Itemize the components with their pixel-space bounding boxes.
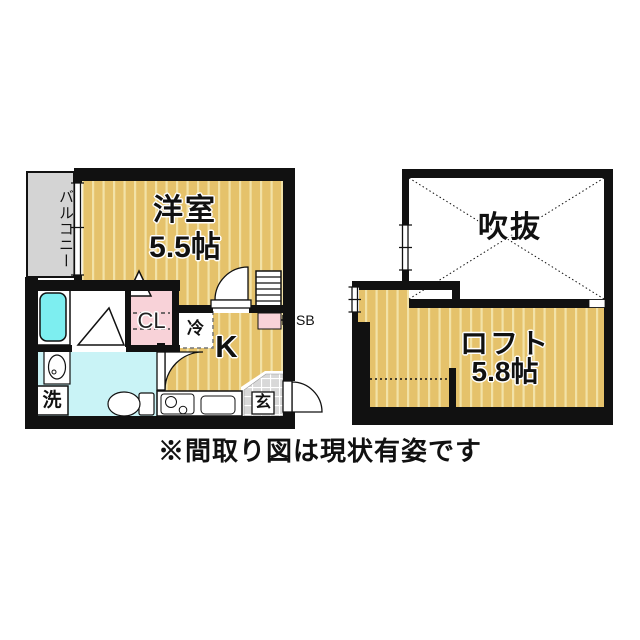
toilet-tank [139, 393, 154, 415]
floorplan-drawing [0, 0, 640, 640]
closet-label: CL [131, 310, 172, 332]
loft-wall-opening [589, 300, 605, 308]
main-room-size: 5.5帖 [85, 233, 285, 263]
shoe-box-label: SB [296, 313, 315, 327]
main-room-label: 洋室 [85, 196, 285, 226]
toilet-bowl [108, 392, 140, 416]
laundry-label: 洗 [36, 391, 68, 410]
floorplan-image: バルコニー 洋室 5.5帖 CL 冷 K SB 玄 洗 吹抜 ロフト 5.8帖 … [0, 0, 640, 640]
loft-size: 5.8帖 [405, 358, 605, 386]
stove-burner-small [179, 406, 187, 414]
stove-burner-large [166, 397, 177, 408]
loft-label: ロフト [405, 330, 605, 358]
caption: ※間取り図は現状有姿です [0, 438, 640, 464]
stairs-ladder [256, 271, 281, 307]
entrance-door [283, 381, 322, 412]
bathtub [40, 293, 66, 341]
vanity-sink-bowl [49, 355, 66, 379]
shoe-box [258, 313, 281, 329]
kitchen-label: K [199, 331, 254, 362]
kitchen-sink [201, 396, 235, 414]
void-label: 吹抜 [412, 213, 608, 243]
entrance-label: 玄 [252, 395, 274, 411]
balcony-label: バルコニー [29, 183, 73, 275]
